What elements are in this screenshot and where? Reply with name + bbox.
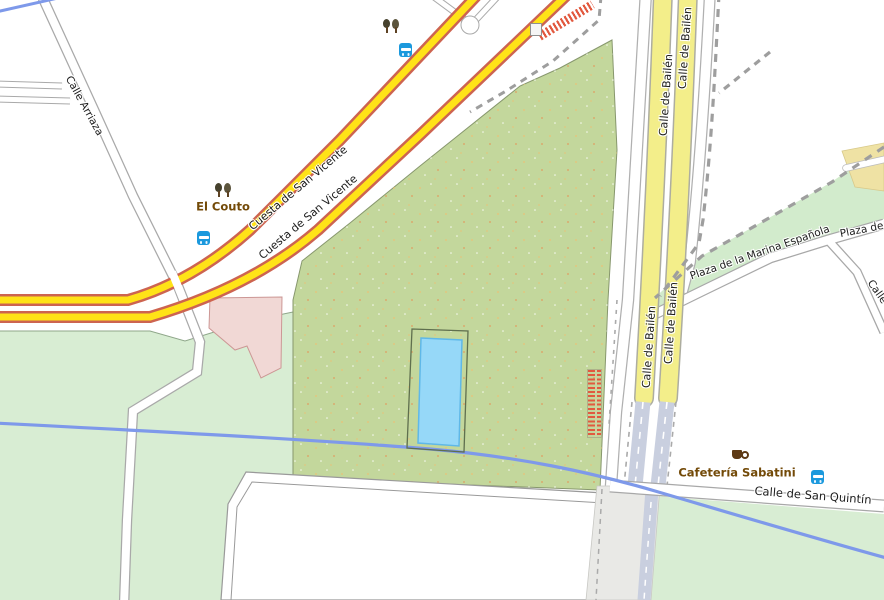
tree-icon (392, 19, 399, 33)
tree-icon (383, 19, 390, 33)
place-label-el-couto: El Couto (196, 201, 250, 213)
map-viewport[interactable]: Calle Arriaza Cuesta de San Vicente Cues… (0, 0, 884, 600)
bus-stop-icon (197, 231, 210, 245)
trees-icon (215, 183, 231, 197)
tree-icon (224, 183, 231, 197)
tree-icon (215, 183, 222, 197)
cafe-cup-icon (732, 448, 747, 460)
steps-icon (587, 369, 602, 438)
building-layer (221, 472, 604, 600)
trees-icon (383, 19, 399, 33)
place-label-cafeteria-sabatini: Cafetería Sabatini (678, 467, 795, 479)
pool-water (418, 338, 462, 446)
bus-stop-icon (811, 470, 824, 484)
map-canvas (0, 0, 884, 600)
bus-stop-icon (399, 43, 412, 57)
elevator-icon (530, 23, 542, 36)
